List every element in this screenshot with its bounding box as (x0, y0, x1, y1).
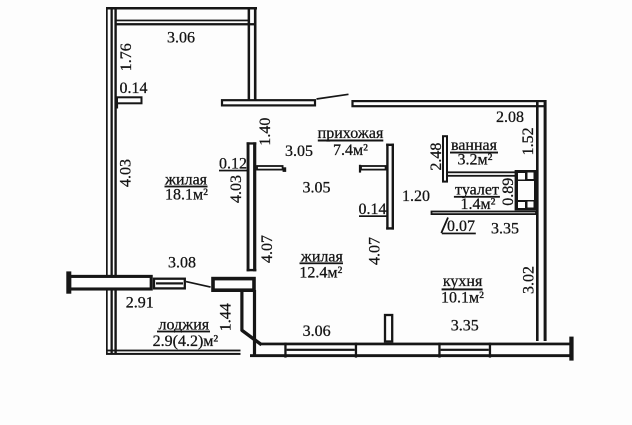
svg-text:0.07: 0.07 (447, 218, 475, 235)
svg-text:18.1м²: 18.1м² (165, 187, 208, 204)
svg-text:2.08: 2.08 (496, 109, 524, 126)
svg-text:4.07: 4.07 (367, 237, 384, 265)
svg-text:3.2м²: 3.2м² (458, 152, 493, 169)
svg-text:0.89: 0.89 (500, 178, 517, 206)
svg-text:2.48: 2.48 (428, 143, 445, 171)
svg-text:1.4м²: 1.4м² (461, 196, 496, 213)
svg-text:2.9(4.2)м²: 2.9(4.2)м² (153, 333, 219, 350)
svg-text:3.05: 3.05 (303, 180, 331, 197)
svg-text:3.08: 3.08 (168, 255, 196, 272)
svg-text:3.35: 3.35 (451, 317, 479, 334)
svg-text:0.14: 0.14 (120, 80, 148, 97)
svg-text:1.44: 1.44 (218, 303, 235, 331)
svg-text:3.06: 3.06 (167, 30, 195, 47)
svg-text:3.02: 3.02 (520, 266, 537, 294)
svg-text:7.4м²: 7.4м² (333, 142, 368, 159)
svg-text:4.03: 4.03 (117, 159, 134, 187)
svg-text:12.4м²: 12.4м² (299, 264, 342, 281)
svg-text:прихожая: прихожая (318, 125, 384, 142)
svg-text:4.07: 4.07 (259, 235, 276, 263)
svg-text:1.52: 1.52 (520, 127, 537, 155)
svg-text:4.03: 4.03 (228, 175, 245, 203)
svg-text:2.91: 2.91 (126, 295, 154, 312)
svg-text:кухня: кухня (443, 273, 483, 290)
svg-text:3.06: 3.06 (303, 323, 331, 340)
svg-text:3.35: 3.35 (491, 221, 519, 238)
svg-text:10.1м²: 10.1м² (441, 289, 484, 306)
svg-text:3.05: 3.05 (285, 143, 313, 160)
svg-text:1.40: 1.40 (257, 118, 274, 146)
svg-text:1.20: 1.20 (402, 188, 430, 205)
svg-text:1.76: 1.76 (118, 43, 135, 71)
